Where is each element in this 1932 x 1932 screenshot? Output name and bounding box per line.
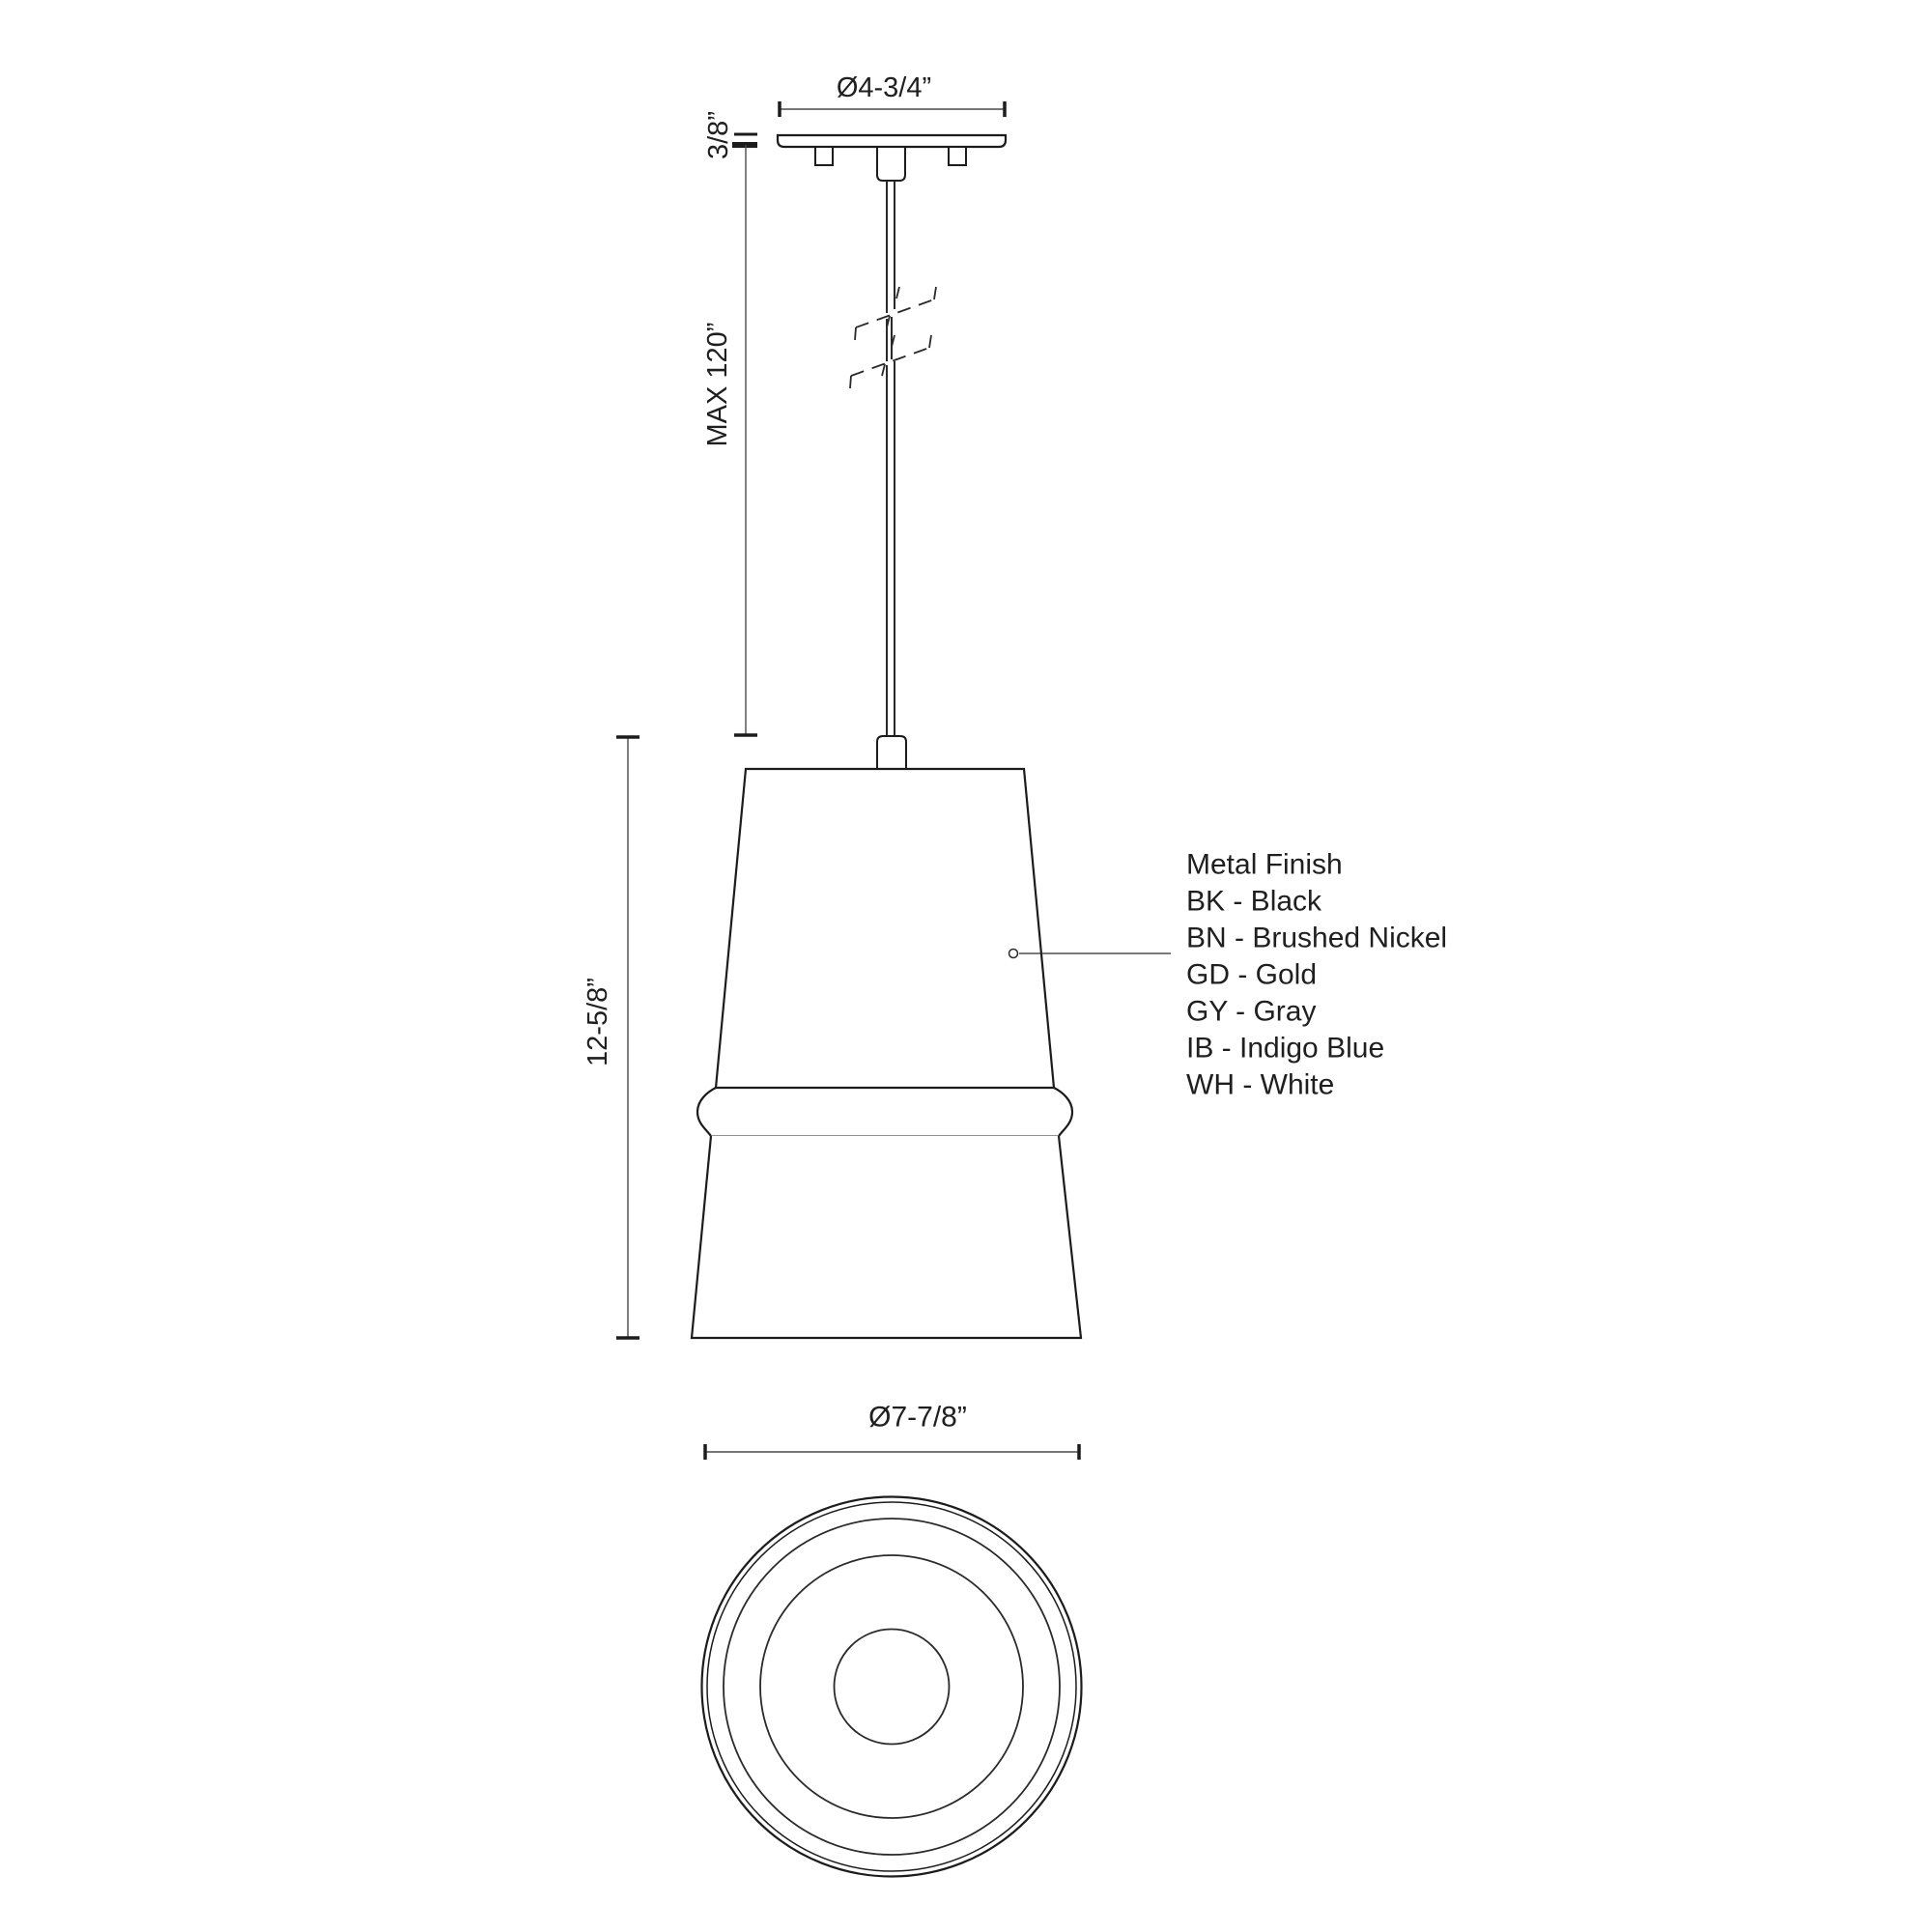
legend-item-gd: GD - Gold [1186,959,1317,991]
bottom-view-outer-rim-circle [702,1497,1082,1877]
dim-fixture-height: 12-5/8” [582,737,639,1338]
break-tick-left [850,376,851,388]
suspension-cord [887,181,895,736]
shade-upper-cone [716,769,1054,1088]
mounting-tab-right [949,147,966,165]
technical-drawing-page: Ø4-3/4” 3/8” MAX 120” [0,0,1932,1932]
dim-canopy-diameter: Ø4-3/4” [780,72,1005,117]
bottom-view-middle-circle [724,1519,1060,1855]
cord-connector [877,147,905,181]
bottom-view [702,1497,1082,1877]
cord-length-label: MAX 120” [702,323,733,447]
break-line [851,348,929,376]
fixture-height-label: 12-5/8” [582,978,613,1066]
break-tick-mid2 [896,287,899,298]
leader-circle [1009,950,1018,958]
legend-item-wh: WH - White [1186,1069,1334,1101]
bottom-view-inner-circle [760,1555,1023,1818]
shade-lower-cone [692,1136,1081,1338]
canopy [778,135,1006,181]
canopy-diameter-label: Ø4-3/4” [837,72,931,103]
break-tick-left [855,327,856,340]
bottom-view-outer-inner-ring [707,1502,1076,1871]
break-tick-right [929,335,931,348]
dim-canopy-height: 3/8” [703,111,757,159]
break-tick-mid [882,364,885,376]
drawing-svg: Ø4-3/4” 3/8” MAX 120” [0,0,1932,1932]
break-tick-right [934,287,936,299]
shade-collar-right-bulge [1054,1088,1072,1136]
legend-item-bk: BK - Black [1186,886,1322,918]
shade-diameter-label: Ø7-7/8” [868,1402,967,1434]
stem-connector [877,736,906,769]
mounting-tab-left [815,147,833,165]
legend-item-bn: BN - Brushed Nickel [1186,923,1447,954]
shade-collar-left-bulge [697,1088,716,1136]
legend-item-gy: GY - Gray [1186,996,1316,1028]
canopy-height-label: 3/8” [703,111,734,159]
dim-shade-diameter: Ø7-7/8” [705,1402,1079,1461]
canopy-plate [778,135,1006,147]
legend-title: Metal Finish [1186,849,1343,881]
legend-item-ib: IB - Indigo Blue [1186,1033,1384,1065]
bottom-view-socket-circle [835,1630,950,1745]
dim-cord-length: MAX 120” [702,145,757,735]
finish-legend: Metal Finish BK - Black BN - Brushed Nic… [1186,849,1447,1101]
